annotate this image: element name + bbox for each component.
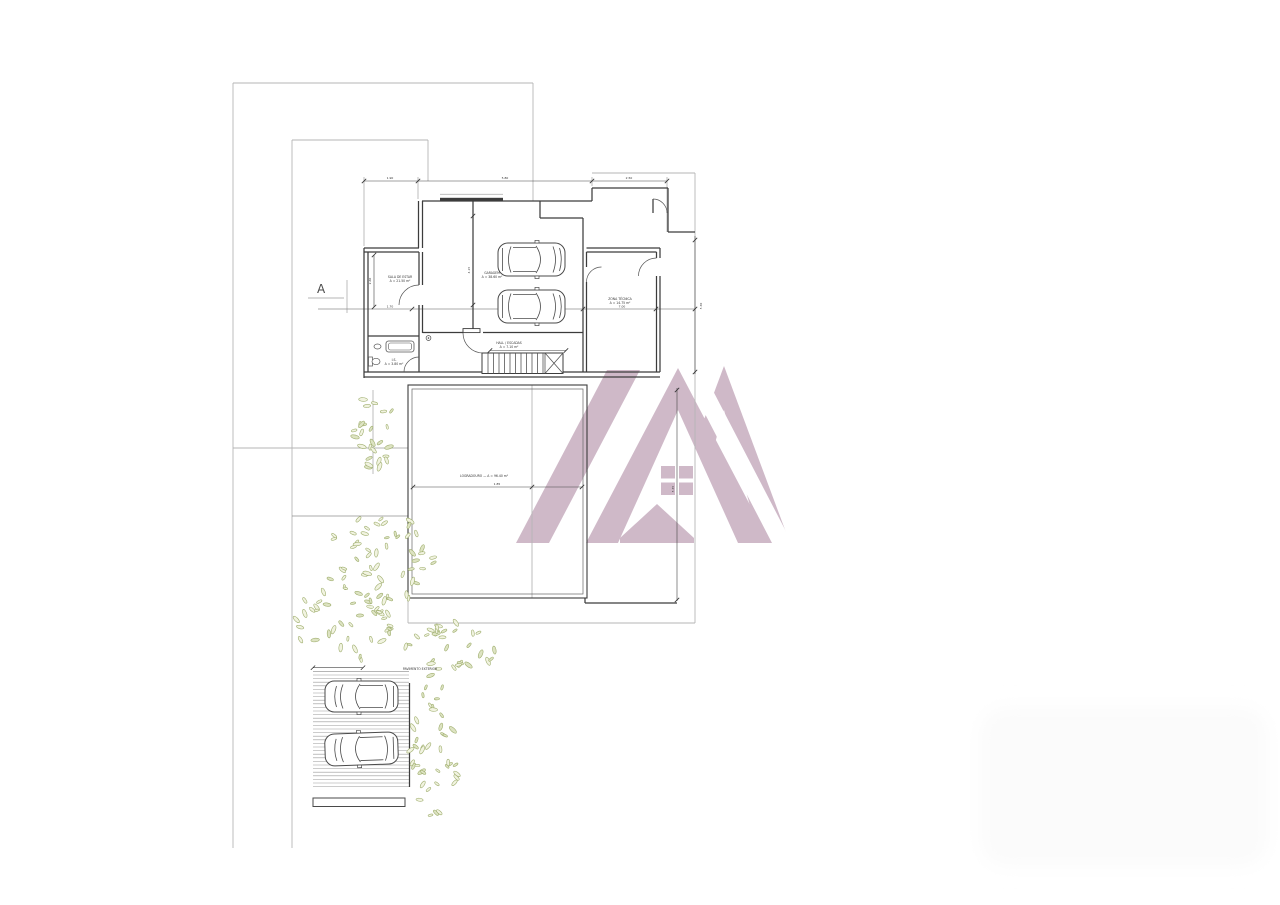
cars-layer <box>324 240 565 768</box>
car-icon <box>498 240 565 278</box>
dimension-label: 5.35 <box>671 486 675 493</box>
floor-plan-canvas: SALA DE ESTARA = 21.50 m²GARAGEMA = 38.6… <box>0 0 1280 905</box>
bathtub-icon <box>386 341 414 352</box>
room-label: A = 21.50 m² <box>390 279 412 283</box>
dimension-label: 5.30 <box>699 303 703 310</box>
watermark-window-pane <box>661 466 675 479</box>
watermark-window-pane <box>679 483 693 496</box>
dimension-label: 5.80 <box>502 176 509 180</box>
dimension-label: 1.90 <box>387 176 394 180</box>
tree-foliage <box>403 618 497 671</box>
background-smudge <box>980 707 1268 867</box>
dimension-label: 2.50 <box>626 176 633 180</box>
room-label: LOGRADOURO — A = 96.40 m² <box>460 474 509 478</box>
dimension-label: 4.15 <box>467 267 471 274</box>
door-arc <box>399 285 419 305</box>
door-arc <box>463 333 483 353</box>
dimension-label: 1.85 <box>494 482 501 486</box>
tree-foliage <box>350 397 394 471</box>
watermark-logo <box>516 358 792 543</box>
car-icon <box>324 729 398 769</box>
car-icon <box>325 678 398 714</box>
room-label: A = 3.80 m² <box>385 362 405 366</box>
room-label: A = 7.10 m² <box>500 345 520 349</box>
door-arc <box>587 267 602 282</box>
room-label: PAVIMENTO EXTERIOR <box>403 667 438 671</box>
dimension-label: 2.60 <box>368 278 372 285</box>
car-icon <box>498 287 565 325</box>
door-arc <box>404 357 419 372</box>
watermark-window-pane <box>679 466 693 479</box>
door-arc <box>639 258 657 276</box>
stairs-icon <box>482 353 563 374</box>
tree-foliage <box>406 672 461 816</box>
window <box>440 198 503 201</box>
dimension-label: 7.00 <box>619 305 626 309</box>
door-leaf <box>463 329 480 333</box>
section-marker-a: A <box>317 282 326 296</box>
door-arc <box>653 199 667 213</box>
floor-plan-svg: SALA DE ESTARA = 21.50 m²GARAGEMA = 38.6… <box>0 0 1280 905</box>
tree-foliage <box>327 516 437 606</box>
planter <box>313 798 405 807</box>
dimension-label: 1.70 <box>387 305 394 309</box>
sink-icon <box>374 344 381 349</box>
site-boundary-layer <box>233 83 695 848</box>
room-label: A = 38.60 m² <box>482 275 504 279</box>
